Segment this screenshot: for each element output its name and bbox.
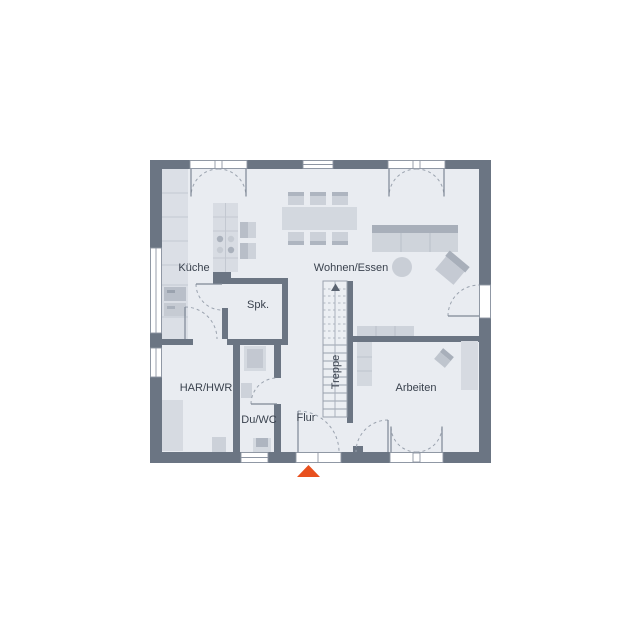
sideboard bbox=[357, 326, 414, 336]
kitchen-appliance-oven bbox=[164, 287, 186, 301]
office-shelf bbox=[357, 342, 372, 386]
wall-duwc-flur-upper bbox=[274, 345, 281, 378]
wall-spk-duwc bbox=[227, 339, 288, 345]
door-frame-entrance bbox=[296, 453, 341, 463]
room-label-kueche: Küche bbox=[178, 262, 209, 274]
wall-kueche-har bbox=[162, 339, 193, 345]
room-label-flur: Flur bbox=[297, 412, 316, 424]
wall-duwc-flur-lower bbox=[274, 404, 281, 452]
wall-flur-arbeiten-stub bbox=[353, 446, 363, 452]
wall-spk-left bbox=[222, 308, 228, 339]
room-label-har-hwr: HAR/HWR bbox=[180, 382, 233, 394]
dining-table bbox=[282, 207, 357, 230]
french-door-handle-wohnen bbox=[413, 161, 420, 169]
room-label-spk: Spk. bbox=[247, 299, 269, 311]
washbasin bbox=[241, 383, 252, 398]
office-desk bbox=[461, 341, 478, 390]
french-door-handle-arbeiten bbox=[413, 453, 420, 462]
floor-plan-drawing: Küche Wohnen/Essen Spk. Treppe HAR/HWR D… bbox=[0, 0, 636, 636]
room-label-du-wc: Du/WC bbox=[241, 414, 277, 426]
wall-spk-right bbox=[282, 284, 288, 339]
dining-set bbox=[282, 192, 357, 245]
har-cabinet bbox=[162, 400, 183, 451]
wall-wohnen-arbeiten bbox=[347, 336, 479, 342]
door-frame-terrace bbox=[480, 285, 491, 318]
floor-plan-canvas: Küche Wohnen/Essen Spk. Treppe HAR/HWR D… bbox=[0, 0, 636, 636]
sofa-back bbox=[372, 225, 458, 233]
coffee-table bbox=[392, 257, 412, 277]
entrance-marker-icon bbox=[297, 465, 320, 477]
wall-har-duwc bbox=[233, 345, 240, 452]
french-door-handle-kueche bbox=[215, 161, 222, 169]
room-label-arbeiten: Arbeiten bbox=[396, 382, 437, 394]
har-appliance bbox=[212, 437, 226, 452]
wall-stairs-right bbox=[347, 281, 353, 423]
kitchen-appliance bbox=[164, 303, 186, 316]
staircase bbox=[323, 281, 347, 417]
sofa bbox=[372, 233, 458, 252]
room-label-wohnen-essen: Wohnen/Essen bbox=[314, 262, 388, 274]
room-label-treppe: Treppe bbox=[330, 355, 342, 389]
wall-spk-top bbox=[213, 278, 288, 284]
